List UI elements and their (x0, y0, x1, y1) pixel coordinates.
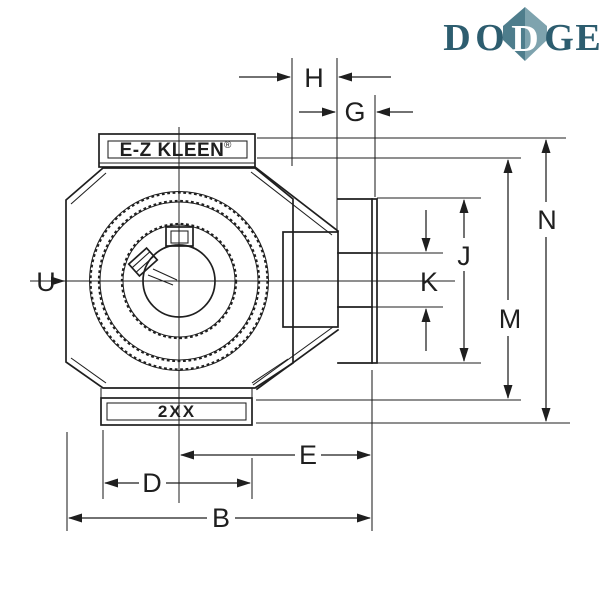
drawing-canvas: H G N M J K E D B U E-Z KLEEN ® 2XX D O … (0, 0, 600, 600)
dim-label-j: J (457, 241, 471, 271)
dim-label-d: D (142, 468, 162, 498)
logo-letter: O (475, 17, 505, 59)
dim-label-h: H (304, 63, 324, 93)
extension-lines (67, 58, 570, 531)
dim-label-n: N (537, 205, 557, 235)
logo-letter: E (575, 17, 600, 59)
dim-label-m: M (499, 304, 522, 334)
registered-mark-icon: ® (224, 140, 232, 151)
setscrew (129, 248, 177, 285)
dodge-logo: D O G E D (443, 7, 600, 61)
logo-letter: D (443, 17, 470, 59)
dim-label-u: U (36, 267, 56, 297)
logo-letter-diamond: D (511, 18, 538, 60)
dim-label-k: K (420, 267, 438, 297)
housing-marking-text: E-Z KLEEN (120, 140, 225, 161)
dim-label-g: G (344, 97, 365, 127)
base-marking-text: 2XX (158, 402, 196, 421)
hub-profile (251, 167, 377, 389)
logo-letter: G (544, 17, 574, 59)
dim-label-b: B (212, 503, 230, 533)
technical-drawing: H G N M J K E D B U E-Z KLEEN ® 2XX D O … (0, 0, 600, 600)
dim-label-e: E (299, 440, 317, 470)
